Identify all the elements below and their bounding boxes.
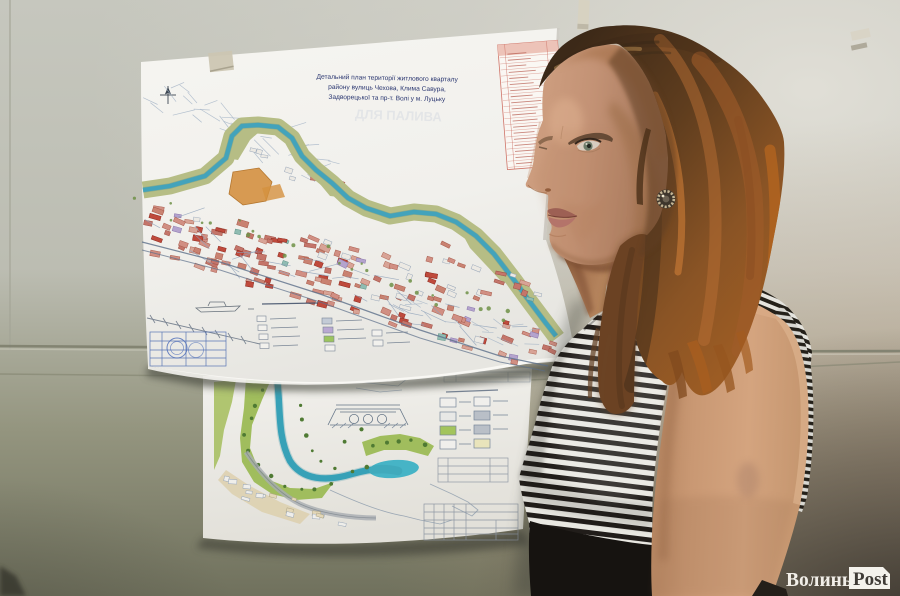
svg-text:Post: Post	[853, 569, 889, 590]
svg-text:ДЛЯ ПАЛИВА: ДЛЯ ПАЛИВА	[355, 106, 443, 124]
svg-text:Волинь: Волинь	[786, 570, 852, 591]
